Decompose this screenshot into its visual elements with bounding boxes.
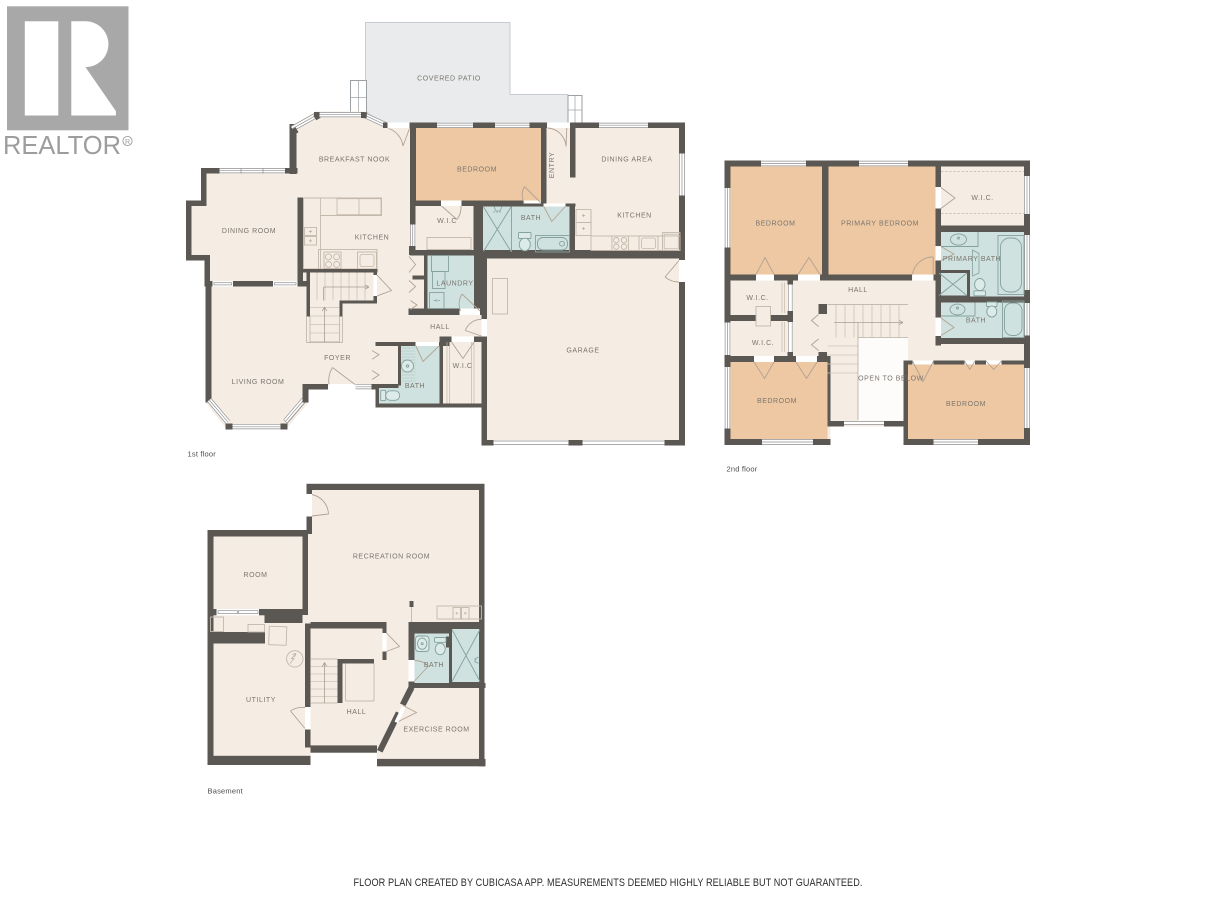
svg-text:GARAGE: GARAGE [566, 348, 599, 355]
svg-text:KITCHEN: KITCHEN [617, 213, 652, 220]
svg-text:DINING AREA: DINING AREA [601, 157, 652, 164]
svg-text:BEDROOM: BEDROOM [755, 221, 795, 228]
svg-text:BATH: BATH [405, 383, 425, 390]
svg-text:W.I.C.: W.I.C. [746, 295, 768, 302]
svg-text:FOYER: FOYER [324, 355, 351, 362]
svg-text:R: R [125, 139, 130, 146]
svg-text:W.I.C.: W.I.C. [971, 195, 993, 202]
svg-text:W.I.C.: W.I.C. [752, 340, 774, 347]
svg-text:UTILITY: UTILITY [246, 697, 276, 704]
svg-text:DINING ROOM: DINING ROOM [222, 228, 276, 235]
svg-text:2nd floor: 2nd floor [727, 465, 758, 474]
svg-text:RECREATION ROOM: RECREATION ROOM [353, 554, 430, 561]
svg-text:BATH: BATH [966, 318, 986, 325]
svg-text:BREAKFAST NOOK: BREAKFAST NOOK [319, 157, 390, 164]
svg-text:HALL: HALL [347, 709, 367, 716]
svg-text:BATH: BATH [424, 662, 444, 669]
svg-text:FLOOR PLAN CREATED BY CUBICASA: FLOOR PLAN CREATED BY CUBICASA APP. MEAS… [354, 877, 863, 889]
svg-text:ENTRY: ENTRY [549, 152, 556, 178]
svg-text:1st floor: 1st floor [188, 450, 217, 459]
svg-text:COVERED PATIO: COVERED PATIO [417, 76, 481, 83]
svg-text:LIVING ROOM: LIVING ROOM [232, 379, 285, 386]
svg-text:LAUNDRY: LAUNDRY [436, 281, 473, 288]
svg-text:BEDROOM: BEDROOM [757, 398, 797, 405]
svg-text:BATH: BATH [521, 215, 541, 222]
svg-text:ROOM: ROOM [244, 572, 268, 579]
svg-text:OPEN TO BELOW: OPEN TO BELOW [858, 376, 924, 383]
svg-text:W.I.C: W.I.C [437, 218, 457, 225]
svg-text:REALTOR: REALTOR [3, 132, 121, 160]
svg-text:PRIMARY BEDROOM: PRIMARY BEDROOM [841, 221, 919, 228]
svg-text:EXERCISE ROOM: EXERCISE ROOM [403, 727, 469, 734]
svg-text:HALL: HALL [848, 287, 868, 294]
svg-text:PRIMARY BATH: PRIMARY BATH [943, 256, 1001, 263]
svg-text:W.I.C: W.I.C [453, 363, 473, 370]
svg-text:BEDROOM: BEDROOM [457, 167, 497, 174]
svg-text:KITCHEN: KITCHEN [355, 235, 390, 242]
svg-text:BEDROOM: BEDROOM [946, 401, 986, 408]
svg-text:Basement: Basement [208, 787, 244, 796]
svg-text:HALL: HALL [430, 324, 450, 331]
